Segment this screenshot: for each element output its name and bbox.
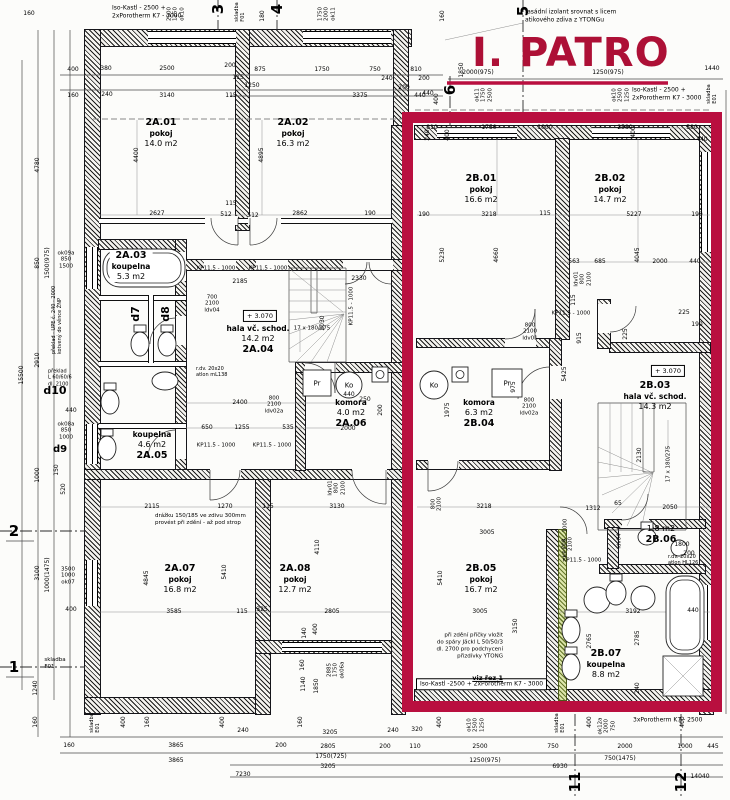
- dimension-label: 440: [696, 137, 707, 143]
- opening-label-line: ldv01: [522, 335, 537, 341]
- lintel-label: KP11.5 - 1000: [349, 287, 356, 326]
- dimension-label: 440: [687, 608, 698, 614]
- opening-label-line: 2100: [522, 329, 537, 335]
- dimension-label: 15500: [19, 365, 25, 384]
- note-label: 17 x 180/275: [666, 446, 673, 483]
- dimension-label: 650: [201, 425, 212, 431]
- dimension-label: 580: [686, 125, 697, 131]
- dimension-label: 115: [232, 75, 243, 81]
- dimension-label: 3100: [35, 565, 41, 580]
- lintel-label: KP11.5 - 1000: [197, 266, 236, 273]
- dimension-label: 2805: [324, 609, 339, 615]
- dimension-label: 5410: [438, 570, 444, 585]
- room-id: 2B.03: [623, 380, 686, 392]
- room-type: komora: [335, 398, 367, 408]
- dimension-label: 3205: [322, 730, 337, 736]
- note-label: r.dv. 20x20 atlon HL126: [668, 554, 698, 567]
- dimension-label: 3865: [168, 743, 183, 749]
- dimension-label: 685: [594, 259, 605, 265]
- dimension-label: 850: [35, 257, 41, 268]
- dimension-label: 325: [256, 607, 267, 613]
- note-label: Pr: [314, 380, 321, 389]
- room-id: 2A.05: [133, 450, 172, 462]
- note-label: d10: [43, 384, 66, 398]
- room-type: pokoj: [163, 575, 196, 585]
- room-label: koupelna4.6 m22A.05: [133, 430, 172, 462]
- grid-axis-number: 12: [672, 772, 690, 793]
- opening-label-line: 2100: [265, 402, 284, 408]
- dimension-label: 6930: [552, 764, 567, 770]
- room-type: pokoj: [593, 185, 626, 195]
- dimension-label: 3218: [476, 504, 491, 510]
- opening-label-line: 2000: [604, 718, 610, 735]
- dimension-label: 2785: [635, 630, 641, 645]
- dimension-label: 200: [398, 85, 409, 91]
- dimension-label: 400: [313, 623, 319, 634]
- dimension-label: 160: [33, 716, 39, 727]
- note-label: ldv04: [617, 533, 624, 548]
- grid-axis-number: 5: [514, 6, 532, 16]
- dimension-label: 400: [65, 607, 76, 613]
- room-id: 2A.02: [276, 117, 309, 129]
- dimension-label: 5227: [626, 212, 641, 218]
- lintel-label: KP11.5 - 1000: [563, 558, 602, 565]
- annotations-layer: 4003802500200160240314011511512508751750…: [0, 0, 730, 800]
- dimension-label: 115: [236, 609, 247, 615]
- dimension-label: 1250(975): [469, 758, 500, 764]
- dimension-label: 1140: [301, 676, 307, 691]
- dimension-label: 115: [539, 211, 550, 217]
- dimension-label: 400: [437, 716, 443, 727]
- dimension-label: 2500: [159, 66, 174, 72]
- dimension-label: 4780: [35, 157, 41, 172]
- opening-label-line: 2100: [586, 271, 592, 286]
- room-label: 2B.05pokoj16.7 m2: [464, 563, 497, 595]
- room-label: 2B.07koupelna8.8 m2: [587, 648, 626, 680]
- dimension-label: 240: [387, 728, 398, 734]
- room-label: 1.8 m22B.06: [646, 524, 677, 547]
- dimension-label: 4895: [259, 147, 265, 162]
- dimension-label: 3150: [513, 618, 519, 633]
- opening-label-line: 2100: [340, 480, 346, 495]
- opening-label-line: ok07: [61, 579, 75, 585]
- dimension-label: 3130: [329, 504, 344, 510]
- dimension-label: 225: [678, 310, 689, 316]
- dimension-label: 190: [364, 211, 375, 217]
- dimension-label: 2000: [652, 259, 667, 265]
- room-label: 2B.01pokoj16.6 m2: [464, 173, 497, 205]
- dimension-label: 1255: [234, 425, 249, 431]
- room-type: koupelna: [112, 262, 151, 272]
- opening-label-line: 750: [610, 718, 616, 735]
- dimension-label: 563: [568, 259, 579, 265]
- opening-label-line: ldv02a: [265, 408, 284, 414]
- room-type: koupelna: [587, 660, 626, 670]
- opening-label-line: 2100: [204, 301, 219, 307]
- dimension-label: 512: [220, 212, 231, 218]
- room-area: 16.8 m2: [163, 585, 196, 595]
- dimension-label: 875: [254, 67, 265, 73]
- note-label: + 3.070: [651, 365, 685, 377]
- dimension-label: 520: [61, 483, 67, 494]
- dimension-label: 110: [409, 744, 420, 750]
- room-id: 2B.05: [464, 563, 497, 575]
- opening-label-line: 2500: [473, 718, 479, 732]
- opening-label-stack: 8002100ldv02a: [265, 396, 284, 415]
- room-type: pokoj: [464, 185, 497, 195]
- dimension-label: 512: [247, 213, 258, 219]
- dimension-label: 1000(1475): [45, 557, 51, 592]
- floor-title: I. PATRO: [472, 30, 670, 76]
- room-id: 2B.07: [587, 648, 626, 660]
- opening-label-line: ldv04: [204, 307, 219, 313]
- opening-label-line: 2000: [324, 7, 330, 21]
- lintel-label: KP11.5 - 1000: [197, 443, 236, 450]
- room-area: 16.6 m2: [464, 195, 497, 205]
- dimension-label: 5230: [440, 247, 446, 262]
- dimension-label: 750: [369, 67, 380, 73]
- opening-label-line: ldv02a: [520, 410, 539, 416]
- room-id: 2A.04: [226, 344, 289, 356]
- dimension-label: 1750(725): [315, 754, 346, 760]
- dimension-label: 2765: [587, 633, 593, 648]
- dimension-label: 1750: [481, 125, 496, 131]
- lintel-label: KP11.5 - 1000: [552, 311, 591, 318]
- room-area: 5.3 m2: [112, 272, 151, 282]
- dimension-label: 115: [571, 294, 577, 305]
- opening-label-line: 1000: [61, 573, 75, 579]
- room-area: 4.0 m2: [335, 408, 367, 418]
- dimension-label: 2500: [472, 744, 487, 750]
- dimension-label: 440: [689, 259, 700, 265]
- room-label: 2A.01pokoj14.0 m2: [144, 117, 177, 149]
- dimension-label: 190: [691, 212, 702, 218]
- room-id: 2A.03: [112, 250, 151, 262]
- note-label: 17 x 180/275: [294, 326, 331, 333]
- lintel-label: KP11.5 - 1000: [563, 519, 570, 558]
- room-area: 12.7 m2: [278, 585, 311, 595]
- dimension-label: 1000: [677, 744, 692, 750]
- grid-axis-number: 2: [9, 522, 19, 540]
- dimension-label: 1240: [33, 680, 39, 695]
- room-label: komora6.3 m22B.04: [463, 398, 495, 430]
- note-label: d7: [129, 306, 143, 322]
- dimension-label: 4400: [134, 147, 140, 162]
- dimension-label: 1750: [314, 67, 329, 73]
- opening-label-line: 2100: [520, 404, 539, 410]
- room-type: hala vč. schod.: [623, 392, 686, 402]
- dimension-label: 160: [23, 11, 34, 17]
- note-label: Iso-Kastl - 2500 + 2xPorotherm K7 - 3000: [632, 87, 701, 102]
- note-label: viz řez 1: [472, 674, 503, 682]
- lintel-label: KP11.5 - 1000: [249, 266, 288, 273]
- dimension-label: 1000: [35, 467, 41, 482]
- room-label: 2B.02pokoj14.7 m2: [593, 173, 626, 205]
- dimension-label: 3865: [168, 758, 183, 764]
- room-type: hala vč. schod.: [226, 324, 289, 334]
- dimension-label: 160: [298, 716, 304, 727]
- opening-label-line: 1000: [58, 434, 75, 440]
- dimension-label: 810: [410, 67, 421, 73]
- room-id: 2A.08: [278, 563, 311, 575]
- dimension-label: 1270: [217, 504, 232, 510]
- room-label: 2A.03koupelna5.3 m2: [110, 250, 153, 282]
- dimension-label: 3375: [352, 93, 367, 99]
- dimension-label: 1312: [585, 506, 600, 512]
- dimension-label: 535: [282, 425, 293, 431]
- dimension-label: 200: [418, 76, 429, 82]
- dimension-label: 750: [547, 744, 558, 750]
- dimension-label: 5425: [562, 366, 568, 381]
- room-area: 14.2 m2: [226, 334, 289, 344]
- dimension-label: 240: [101, 92, 112, 98]
- dimension-label: 445: [707, 744, 718, 750]
- dimension-label: 1975: [445, 402, 451, 417]
- dimension-label: 1250: [244, 83, 259, 89]
- room-label: 2A.02pokoj16.3 m2: [276, 117, 309, 149]
- opening-label-stack: 28851750ok06a: [327, 662, 346, 679]
- dimension-label: 4110: [315, 539, 321, 554]
- room-id: 2B.02: [593, 173, 626, 185]
- dimension-label: 2130: [637, 447, 643, 462]
- dimension-label: 115: [262, 504, 273, 510]
- dimension-label: 1850: [314, 678, 320, 693]
- dimension-label: 320: [411, 727, 422, 733]
- dimension-label: 65: [614, 501, 622, 507]
- note-label: Iso-Kastl - 2500 + 2xPorotherm K7 - 3000: [112, 5, 181, 20]
- dimension-label: 14040: [690, 774, 709, 780]
- dimension-label: 440: [414, 93, 425, 99]
- dimension-label: 190: [418, 212, 429, 218]
- opening-label-stack: ldv018002100: [574, 271, 593, 286]
- room-label: komora4.0 m22A.06: [335, 398, 367, 430]
- dimension-label: 400: [67, 67, 78, 73]
- room-type: pokoj: [144, 129, 177, 139]
- room-label: 2A.08pokoj12.7 m2: [278, 563, 311, 595]
- room-id: 2B.01: [464, 173, 497, 185]
- note-label: skladba F01: [44, 657, 65, 671]
- room-type: pokoj: [276, 129, 309, 139]
- dimension-label: 160: [300, 659, 306, 670]
- dimension-label: 225: [623, 328, 629, 339]
- dimension-label: 240: [237, 728, 248, 734]
- room-type: pokoj: [464, 575, 497, 585]
- note-label: překlad - UPE č. 240 - 2000 kotvený do v…: [51, 286, 64, 354]
- room-area: 16.3 m2: [276, 139, 309, 149]
- grid-axis-number: 6: [441, 85, 459, 95]
- opening-label-line: 1250: [479, 718, 485, 732]
- dimension-label: 2400: [232, 400, 247, 406]
- dimension-label: 160: [63, 743, 74, 749]
- dimension-label: 200: [379, 744, 390, 750]
- note-label: fasádní izolant srovnat s licem atikovéh…: [525, 9, 616, 24]
- lintel-label: KP11.5 - 1000: [253, 443, 292, 450]
- dimension-label: 1440: [704, 66, 719, 72]
- opening-label-stack: 17502000ok11: [318, 7, 337, 21]
- room-type: komora: [463, 398, 495, 408]
- opening-label-stack: ldv018002100: [328, 480, 347, 495]
- note-label: d9: [53, 444, 67, 457]
- room-id: 2A.07: [163, 563, 196, 575]
- grid-axis-number: 11: [566, 772, 584, 793]
- dimension-label: 2805: [320, 744, 335, 750]
- dimension-label: 400: [587, 716, 593, 727]
- dimension-label: 190: [691, 322, 702, 328]
- dimension-label: 3140: [159, 93, 174, 99]
- dimension-label: 4845: [144, 570, 150, 585]
- dimension-label: 240: [635, 682, 641, 693]
- note-label: skladba E01: [706, 84, 719, 103]
- note-label: d8: [159, 306, 173, 322]
- dimension-label: 115: [225, 201, 236, 207]
- dimension-label: 1500(975): [45, 247, 51, 278]
- dimension-label: 7230: [235, 772, 250, 778]
- room-area: 14.7 m2: [593, 195, 626, 205]
- dimension-label: 3205: [320, 764, 335, 770]
- room-area: 14.3 m2: [623, 402, 686, 412]
- dimension-label: 140: [302, 627, 308, 638]
- room-id: 2B.04: [463, 418, 495, 430]
- opening-label-line: 1750: [481, 88, 487, 102]
- note-label: drážku 150/185 ve zdivu 300mm provést př…: [155, 513, 246, 527]
- dimension-label: 3005: [472, 609, 487, 615]
- opening-label-line: 2500: [618, 88, 624, 102]
- dimension-label: 400: [445, 129, 451, 140]
- room-area: 1.8 m2: [646, 524, 677, 534]
- dimension-label: 200: [378, 404, 384, 415]
- dimension-label: 200: [224, 63, 235, 69]
- dimension-label: 115: [225, 93, 236, 99]
- note-label: skladba E01: [554, 713, 567, 732]
- opening-label-line: 1500: [58, 263, 75, 269]
- dimension-label: 200: [275, 743, 286, 749]
- room-label: 2A.07pokoj16.8 m2: [163, 563, 196, 595]
- room-id: 2A.06: [335, 418, 367, 430]
- note-label: 3xPorotherm K7 - 2500: [633, 716, 702, 724]
- note-label: r.dv. 20x20 atlon mL138: [196, 366, 227, 379]
- opening-label-stack: ok1025001250: [467, 718, 486, 732]
- floorplan-sheet: 4003802500200160240314011511512508751750…: [0, 0, 730, 800]
- room-label: hala vč. schod.14.2 m22A.04: [226, 324, 289, 356]
- dimension-label: 380: [100, 66, 111, 72]
- dimension-label: 975: [511, 381, 517, 392]
- dimension-label: 3218: [481, 212, 496, 218]
- dimension-label: 3192: [625, 609, 640, 615]
- opening-label-line: 1250: [624, 88, 630, 102]
- room-type: pokoj: [278, 575, 311, 585]
- opening-label-line: ok06a: [339, 662, 345, 679]
- room-id: 2A.01: [144, 117, 177, 129]
- dimension-label: 1000: [537, 125, 552, 131]
- dimension-label: 5410: [222, 564, 228, 579]
- dimension-label: 4045: [635, 247, 641, 262]
- room-area: 6.3 m2: [463, 408, 495, 418]
- opening-label-stack: ok12a2000750: [598, 718, 617, 735]
- room-label: 2B.03hala vč. schod.14.3 m2: [623, 380, 686, 412]
- dimension-label: 2115: [144, 504, 159, 510]
- dimension-label: 4660: [494, 247, 500, 262]
- opening-label-stack: 8002100: [431, 497, 444, 511]
- room-area: 4.6 m2: [133, 440, 172, 450]
- dimension-label: 2185: [232, 279, 247, 285]
- dimension-label: 3005: [479, 530, 494, 536]
- dimension-label: 240: [381, 76, 392, 82]
- dimension-label: 440: [65, 408, 76, 414]
- opening-label-stack: 8002100ldv02a: [520, 398, 539, 417]
- room-area: 8.8 m2: [587, 670, 626, 680]
- dimension-label: 400: [434, 93, 440, 104]
- opening-label-stack: 35001000ok07: [61, 567, 75, 586]
- note-label: skladba E01: [89, 713, 102, 732]
- opening-label-line: 1750: [333, 662, 339, 679]
- dimension-label: 160: [67, 93, 78, 99]
- dimension-label: 3585: [166, 609, 181, 615]
- note-label: Ko: [430, 382, 439, 391]
- note-label: + 3.070: [243, 310, 277, 322]
- dimension-label: 2627: [149, 211, 164, 217]
- opening-label-stack: 7002100ldv04: [204, 295, 219, 314]
- room-id: 2B.06: [646, 534, 677, 546]
- opening-label-line: 2100: [437, 497, 443, 511]
- opening-label-stack: 8002100ldv01: [522, 323, 537, 342]
- grid-axis-number: 3: [209, 4, 227, 14]
- dimension-label: 240: [425, 129, 431, 140]
- dimension-label: 400: [220, 716, 226, 727]
- opening-label-line: 2500: [487, 88, 493, 102]
- opening-label-stack: ok09a8501500: [58, 251, 75, 270]
- dimension-label: 2050: [662, 505, 677, 511]
- room-type: koupelna: [133, 430, 172, 440]
- opening-label-stack: ok08a8501000: [58, 422, 75, 441]
- dimension-label: 160: [440, 10, 446, 21]
- room-area: 14.0 m2: [144, 139, 177, 149]
- dimension-label: 2862: [292, 211, 307, 217]
- dimension-label: 400: [631, 126, 637, 137]
- dimension-label: 915: [577, 332, 583, 343]
- dimension-label: 750(1475): [604, 756, 635, 762]
- opening-label-stack: ok1117502500: [475, 88, 494, 102]
- opening-label-stack: ok1025001250: [612, 88, 631, 102]
- dimension-label: 160: [145, 716, 151, 727]
- note-label: skladba F01: [234, 2, 247, 21]
- dimension-label: 150: [54, 464, 60, 475]
- note-label: Ko: [345, 382, 354, 391]
- dimension-label: 2330: [351, 276, 366, 282]
- opening-label-line: ok11: [330, 7, 336, 21]
- dimension-label: 2910: [35, 352, 41, 367]
- grid-axis-number: 1: [9, 658, 19, 676]
- note-label: Pr: [504, 380, 511, 389]
- room-area: 16.7 m2: [464, 585, 497, 595]
- note-label: při zdění příčky vložit do spáry Jäckl L…: [436, 632, 503, 660]
- grid-axis-number: 4: [268, 4, 286, 14]
- dimension-label: 400: [121, 716, 127, 727]
- dimension-label: 180: [260, 10, 266, 21]
- dimension-label: 2000: [617, 744, 632, 750]
